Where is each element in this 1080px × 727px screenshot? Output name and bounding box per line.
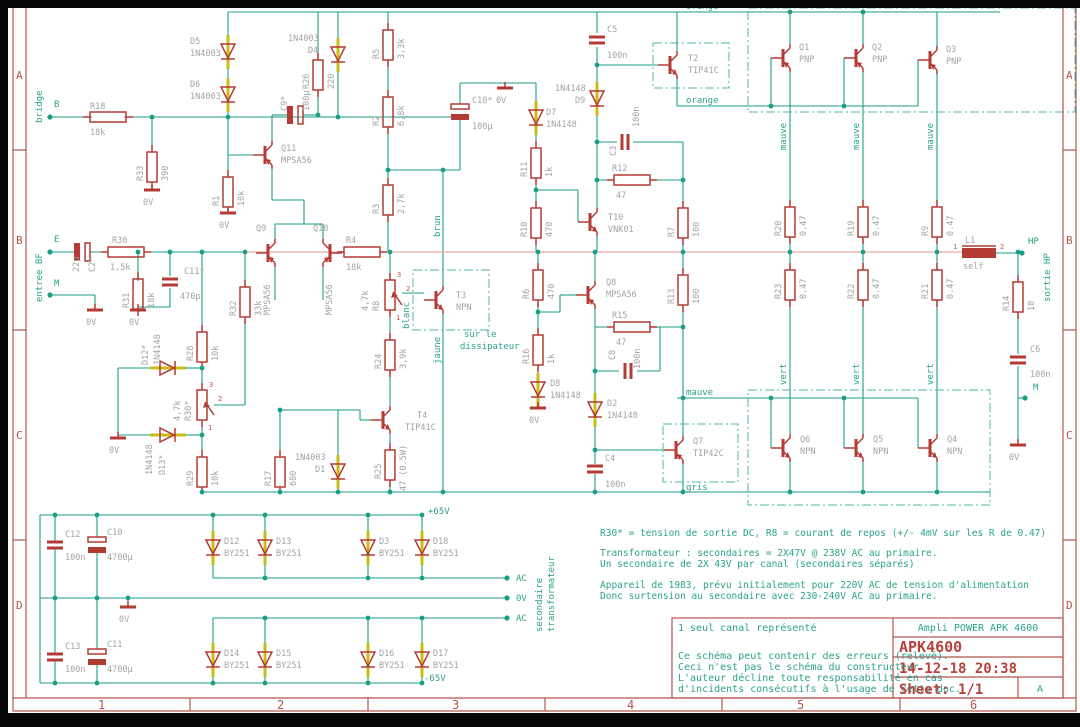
pin-label-ac: AC	[516, 614, 527, 624]
note-line: Transformateur : secondaires = 2X47V @ 2…	[600, 548, 937, 559]
net-label-vert: vert	[779, 363, 789, 385]
component-d18-ref: D18	[433, 537, 448, 547]
component-c3-value: 100n	[632, 107, 642, 127]
component-r24-symbol	[385, 340, 395, 370]
ground-label: 0V	[219, 221, 229, 231]
schematic-name: APK4600	[899, 638, 962, 656]
component-r9-symbol	[932, 207, 942, 237]
component-r9-value: 0.47	[946, 216, 956, 236]
junction-dot	[366, 681, 371, 686]
component-d15-value: BY251	[276, 661, 302, 671]
component-r3-symbol	[383, 185, 393, 215]
component-r16-value: 1k	[547, 354, 557, 364]
junction-dot	[595, 178, 600, 183]
junction-dot	[53, 596, 58, 601]
component-d17-value: BY251	[433, 661, 459, 671]
junction-dot	[681, 396, 686, 401]
junction-dot	[263, 513, 268, 518]
junction-dot	[168, 250, 173, 255]
component-c3-ref: C3	[609, 146, 619, 156]
component-c11-value: 470p	[180, 292, 200, 302]
component-t10-ref: T10	[608, 213, 623, 223]
component-c11-plate	[88, 659, 106, 665]
component-c10-ref: C10*	[472, 96, 492, 106]
component-r9-ref: R9	[921, 226, 931, 236]
component-t10-value: VNK01	[608, 225, 634, 235]
component-r10-ref: R10	[520, 222, 530, 237]
ground-label: 0V	[529, 416, 539, 426]
component-d2-ref: D2	[607, 399, 617, 409]
title-disclaimer: Ceci n'est pas le schéma du constructeur…	[678, 661, 925, 673]
note-line: Appareil de 1983, prévu initialement pou…	[600, 580, 1029, 591]
component-r13-value: 100	[692, 289, 702, 304]
junction-dot	[53, 513, 58, 518]
component-l1-pin2: 2	[1000, 243, 1004, 251]
component-r30-value: 1,5k	[110, 263, 130, 273]
component-r30-ref: R30	[112, 236, 127, 246]
junction-dot	[681, 250, 686, 255]
title-block: 1 seul canal représenté Ce schéma peut c…	[672, 618, 1063, 698]
component-q10-value: MPSA56	[325, 284, 335, 315]
component-r28-symbol	[197, 332, 207, 362]
component-r25-value: 47 (0.5W)	[399, 445, 409, 491]
component-c10-plate	[88, 537, 106, 542]
junction-dot	[316, 113, 321, 118]
component-r5-symbol	[383, 30, 393, 60]
pin-label-0v: 0V	[516, 594, 527, 604]
component-d1-ref: D1	[315, 465, 325, 475]
component-q3-ref: Q3	[946, 45, 956, 55]
component-r21-symbol	[932, 270, 942, 300]
component-d5-ref: D5	[190, 37, 200, 47]
component-r7-symbol	[678, 208, 688, 238]
component-l1-ref: L1	[965, 236, 975, 246]
title-note: 1 seul canal représenté	[678, 622, 816, 634]
junction-dot	[150, 115, 155, 120]
junction-dot	[681, 178, 686, 183]
component-r32-symbol	[240, 287, 250, 317]
component-r24-value: 3,9k	[399, 349, 409, 369]
net-label-transformateur: transformateur	[547, 556, 557, 632]
junction-dot	[53, 681, 58, 686]
component-r26-symbol	[313, 60, 323, 90]
component-c13-ref: C13	[65, 642, 80, 652]
component-d15-ref: D15	[276, 649, 291, 659]
component-r17-ref: R17	[264, 471, 274, 486]
component-r31-ref: R31	[122, 293, 132, 308]
junction-dot	[211, 513, 216, 518]
pin-label-e: E	[54, 235, 59, 245]
component-r28-ref: R28	[186, 346, 196, 361]
pin-e	[47, 249, 52, 254]
frame-row-label-left: D	[16, 599, 23, 612]
component-r7-value: 100	[692, 222, 702, 237]
component-c13-value: 100n	[65, 665, 85, 675]
junction-dot	[593, 250, 598, 255]
component-d7-value: 1N4148	[546, 120, 577, 130]
component-d8-value: 1N4148	[550, 391, 581, 401]
component-r19-symbol	[858, 207, 868, 237]
junction-dot	[211, 681, 216, 686]
junction-dot	[420, 513, 425, 518]
component-q9-value: MPSA56	[263, 284, 273, 315]
net-label-mauve: mauve	[852, 123, 862, 150]
component-r14-symbol	[1013, 282, 1023, 312]
component-c11-value: 4700µ	[107, 665, 133, 675]
junction-dot	[534, 188, 539, 193]
component-r8-pin3: 3	[397, 271, 401, 279]
component-r14-value: 10	[1027, 301, 1037, 311]
component-r1-ref: R1	[212, 196, 222, 206]
junction-dot	[420, 616, 425, 621]
junction-dot	[366, 513, 371, 518]
component-r22-ref: R22	[847, 284, 857, 299]
component-r25-symbol	[385, 450, 395, 480]
frame-col-label: 5	[797, 698, 804, 712]
component-d13-value: BY251	[276, 549, 302, 559]
frame-col-label: 3	[452, 698, 459, 712]
junction-dot	[263, 576, 268, 581]
junction-dot	[593, 490, 598, 495]
letterbox-bottom	[0, 713, 1080, 727]
component-r13-symbol	[678, 275, 688, 305]
component-d1-value: 1N4003	[295, 453, 326, 463]
component-c11-ref: C11	[107, 640, 122, 650]
junction-dot	[200, 490, 205, 495]
component-q2-ref: Q2	[872, 43, 882, 53]
component-r26-ref: R26	[302, 74, 312, 89]
net-label-orange: orange	[686, 96, 719, 106]
component-q1-value: PNP	[799, 55, 814, 65]
component-r29-ref: R29	[186, 471, 196, 486]
junction-dot	[136, 250, 141, 255]
component-r23-value: 0.47	[799, 279, 809, 299]
component-r12-value: 47	[616, 191, 626, 201]
junction-dot	[595, 140, 600, 145]
component-q8-ref: Q8	[606, 278, 616, 288]
component-c8-ref: C8	[608, 350, 618, 360]
component-c8-value: 100n	[633, 349, 643, 369]
junction-dot	[200, 250, 205, 255]
component-q3-value: PNP	[946, 57, 961, 67]
component-c4-ref: C4	[605, 454, 615, 464]
component-d12-value: 1N4148	[153, 334, 163, 365]
component-r8-ref: R8	[372, 301, 382, 311]
net-label-sortiehp: sortie HP	[1043, 253, 1053, 302]
component-d12-ref: D12	[224, 537, 239, 547]
component-r5-value: 3,3k	[397, 39, 407, 59]
junction-dot	[842, 104, 847, 109]
junction-dot	[935, 490, 940, 495]
component-q7-ref: Q7	[693, 437, 703, 447]
revision-label: A	[1037, 684, 1043, 695]
frame-col-label: 6	[970, 698, 977, 712]
component-d6-value: 1N4003	[190, 92, 221, 102]
letterbox-top	[0, 0, 1080, 8]
junction-dot	[200, 366, 205, 371]
frame-col-label: 1	[98, 698, 105, 712]
component-r10-symbol	[531, 208, 541, 238]
junction-dot	[420, 576, 425, 581]
component-d12-value: BY251	[224, 549, 250, 559]
frame-row-label-right: C	[1066, 429, 1073, 442]
junction-dot	[388, 490, 393, 495]
net-label-gris: gris	[686, 483, 708, 493]
component-r14-ref: R14	[1002, 296, 1012, 311]
component-r16-symbol	[533, 335, 543, 365]
component-d9-ref: D9	[575, 96, 585, 106]
component-l1-symbol	[962, 248, 996, 258]
net-label-vert: vert	[926, 363, 936, 385]
junction-dot	[536, 310, 541, 315]
note-line: Un secondaire de 2X 43V par canal (secon…	[600, 559, 915, 570]
component-r7-ref: R7	[667, 227, 677, 237]
component-r6-symbol	[533, 270, 543, 300]
junction-dot	[278, 490, 283, 495]
component-q11-value: MPSA56	[281, 156, 312, 166]
frame-row-label-left: B	[16, 234, 23, 247]
component-r20-ref: R20	[774, 221, 784, 236]
component-d16-value: BY251	[379, 661, 405, 671]
junction-dot	[861, 250, 866, 255]
component-d14-value: BY251	[224, 661, 250, 671]
component-r2-value: 6,8k	[397, 106, 407, 126]
component-r16-ref: R16	[522, 349, 532, 364]
component-q11-ref: Q11	[281, 144, 296, 154]
component-r33-symbol	[147, 152, 157, 182]
component-r15-value: 47	[616, 338, 626, 348]
ground-label: 0V	[119, 615, 129, 625]
component-r11-symbol	[531, 148, 541, 178]
junction-dot	[842, 396, 847, 401]
junction-dot	[788, 490, 793, 495]
junction-dot	[681, 325, 686, 330]
pin-label-b: B	[54, 100, 59, 110]
component-l1-pin1: 1	[953, 243, 957, 251]
component-r20-symbol	[785, 207, 795, 237]
component-r6-ref: R6	[522, 289, 532, 299]
junction-dot	[681, 490, 686, 495]
component-c10-value: 100µ	[472, 122, 492, 132]
component-r11-ref: R11	[520, 162, 530, 177]
junction-dot	[336, 490, 341, 495]
junction-dot	[366, 576, 371, 581]
component-r8-pin2: 2	[406, 285, 410, 293]
component-q2-value: PNP	[872, 55, 887, 65]
net-label-vert: vert	[852, 363, 862, 385]
component-r5-ref: R5	[372, 49, 382, 59]
component-d17-ref: D17	[433, 649, 448, 659]
component-t2-value: TIP41C	[688, 66, 719, 76]
component-r1-symbol	[223, 177, 233, 207]
frame-row-label-left: A	[16, 69, 23, 82]
component-d18-value: BY251	[433, 549, 459, 559]
component-r22-symbol	[858, 270, 868, 300]
component-t3-value: NPN	[456, 303, 471, 313]
frame-row-label-right: B	[1066, 234, 1073, 247]
component-r18-symbol	[90, 112, 126, 122]
notes-block: R30* = tension de sortie DC, R8 = couran…	[600, 528, 1046, 602]
component-r2-ref: R2	[372, 116, 382, 126]
component-c6-ref: C6	[1030, 345, 1040, 355]
component-c12-ref: C12	[65, 530, 80, 540]
junction-dot	[95, 513, 100, 518]
component-c11-ref: C11*	[184, 267, 204, 277]
component-r33-value: 390	[161, 166, 171, 181]
junction-dot	[536, 250, 541, 255]
ground-label: 0V	[129, 318, 139, 328]
junction-dot	[126, 596, 131, 601]
pin-label-hp: HP	[1028, 237, 1039, 247]
junction-dot	[263, 616, 268, 621]
component-r23-ref: R23	[774, 284, 784, 299]
component-r18-value: 18k	[90, 128, 105, 138]
junction-dot	[263, 681, 268, 686]
component-r17-value: 680	[289, 471, 299, 486]
junction-dot	[788, 250, 793, 255]
component-r15-ref: R15	[612, 311, 627, 321]
component-q6-value: NPN	[800, 447, 815, 457]
component-r33-ref: R33	[136, 166, 146, 181]
pin-b	[47, 114, 52, 119]
component-r12-symbol	[614, 175, 650, 185]
component-q5-ref: Q5	[873, 435, 883, 445]
heatsink-group-box	[748, 8, 1075, 112]
pin-label-m: M	[1033, 383, 1039, 393]
frame-row-label-right: D	[1066, 599, 1073, 612]
junction-dot	[388, 250, 393, 255]
junction-dot	[366, 616, 371, 621]
junction-dot	[95, 681, 100, 686]
component-d3-value: BY251	[379, 549, 405, 559]
component-r19-value: 0.47	[872, 216, 882, 236]
component-r3-value: 2,7k	[397, 194, 407, 214]
component-c10-plate	[451, 104, 469, 109]
pin-label-m: M	[54, 279, 60, 289]
schematic-canvas: R26220R53,3kR26,8kR32,7kR33390R110kR3118…	[0, 0, 1080, 727]
net-label-mauve: mauve	[779, 123, 789, 150]
component-r30-value: 4,7k	[173, 401, 183, 421]
component-q7-value: TIP42C	[693, 449, 724, 459]
component-c10-plate	[451, 114, 469, 120]
component-r4-symbol	[344, 247, 380, 257]
net-label-mauve: mauve	[926, 123, 936, 150]
component-d4-value: 1N4003	[288, 34, 319, 44]
frame-row-label-left: C	[16, 429, 23, 442]
net-label-entreebf: entree BF	[35, 253, 45, 302]
component-q6-ref: Q6	[800, 435, 810, 445]
component-d12-ref: D12*	[141, 345, 151, 365]
note-line: R30* = tension de sortie DC, R8 = couran…	[600, 528, 1046, 539]
component-q10-ref: Q10	[313, 224, 328, 234]
component-q4-value: NPN	[947, 447, 962, 457]
component-r28-value: 10k	[211, 346, 221, 361]
junction-dot	[769, 104, 774, 109]
junction-dot	[386, 168, 391, 173]
component-r22-value: 0.47	[872, 279, 882, 299]
component-q5-value: NPN	[873, 447, 888, 457]
component-r30-pin2: 2	[218, 395, 222, 403]
component-d5-value: 1N4003	[190, 49, 221, 59]
junction-dot	[769, 396, 774, 401]
junction-dot	[861, 490, 866, 495]
junction-dot	[226, 115, 231, 120]
component-r11-value: 1k	[545, 167, 555, 177]
component-r19-ref: R19	[847, 221, 857, 236]
component-d2-value: 1N4148	[607, 411, 638, 421]
component-c9-value: 100µ	[302, 91, 312, 111]
component-c5-value: 100n	[607, 51, 627, 61]
component-r4-ref: R4	[346, 236, 356, 246]
component-c10-plate	[88, 547, 106, 553]
ground-label: 0V	[143, 198, 153, 208]
component-d13-value: 1N4148	[145, 444, 155, 475]
component-r18-ref: R18	[90, 102, 105, 112]
component-c2-ref: C2*	[88, 257, 98, 272]
component-r4-value: 18k	[346, 263, 361, 273]
component-r1-value: 10k	[237, 191, 247, 206]
component-c4-value: 100n	[605, 480, 625, 490]
pin-0v	[504, 595, 509, 600]
component-q1-ref: Q1	[799, 43, 809, 53]
component-r31-value: 18k	[147, 293, 157, 308]
component-r8-value: 4,7k	[361, 291, 371, 311]
component-d7-ref: D7	[546, 108, 556, 118]
schematic-sheet: R26220R53,3kR26,8kR32,7kR33390R110kR3118…	[0, 0, 1080, 727]
junction-dot	[200, 433, 205, 438]
component-r30-pin1: 1	[208, 424, 212, 432]
ground-label: 0V	[496, 96, 506, 106]
component-r13-ref: R13	[667, 289, 677, 304]
component-c11-plate	[88, 649, 106, 654]
junction-dot	[441, 168, 446, 173]
net-label-mauve: mauve	[686, 388, 713, 398]
component-q9-ref: Q9	[256, 224, 266, 234]
component-r17-symbol	[275, 457, 285, 487]
junction-dot	[278, 408, 283, 413]
component-r24-ref: R24	[374, 354, 384, 369]
component-r29-value: 10k	[211, 471, 221, 486]
component-t4-ref: T4	[417, 411, 427, 421]
component-l1-value: self	[963, 262, 983, 272]
junction-dot	[336, 115, 341, 120]
component-d3-ref: D3	[379, 537, 389, 547]
pin-m	[1022, 395, 1027, 400]
component-r30-pin3: 3	[209, 381, 213, 389]
component-r20-value: 0.47	[799, 216, 809, 236]
component-r12-ref: R12	[612, 164, 627, 174]
junction-dot	[243, 250, 248, 255]
sheet-number: Sheet: 1/1	[899, 682, 983, 698]
pin-hp	[1019, 250, 1024, 255]
schematic-datetime: 14-12-18 20:38	[899, 661, 1017, 677]
component-d8-ref: D8	[550, 379, 560, 389]
component-r15-symbol	[614, 322, 650, 332]
component-r32-ref: R32	[229, 301, 239, 316]
ground-label: 0V	[86, 318, 96, 328]
junction-dot	[595, 63, 600, 68]
component-d9-value: 1N4148	[555, 84, 586, 94]
component-r26-value: 220	[327, 74, 337, 89]
junction-dot	[593, 448, 598, 453]
component-r21-ref: R21	[921, 284, 931, 299]
component-d6-ref: D6	[190, 80, 200, 90]
component-q8-value: MPSA56	[606, 290, 637, 300]
ground-label: 0V	[109, 446, 119, 456]
component-r2-symbol	[383, 97, 393, 127]
component-r10-value: 470	[545, 222, 555, 237]
component-d4-ref: D4	[308, 46, 318, 56]
